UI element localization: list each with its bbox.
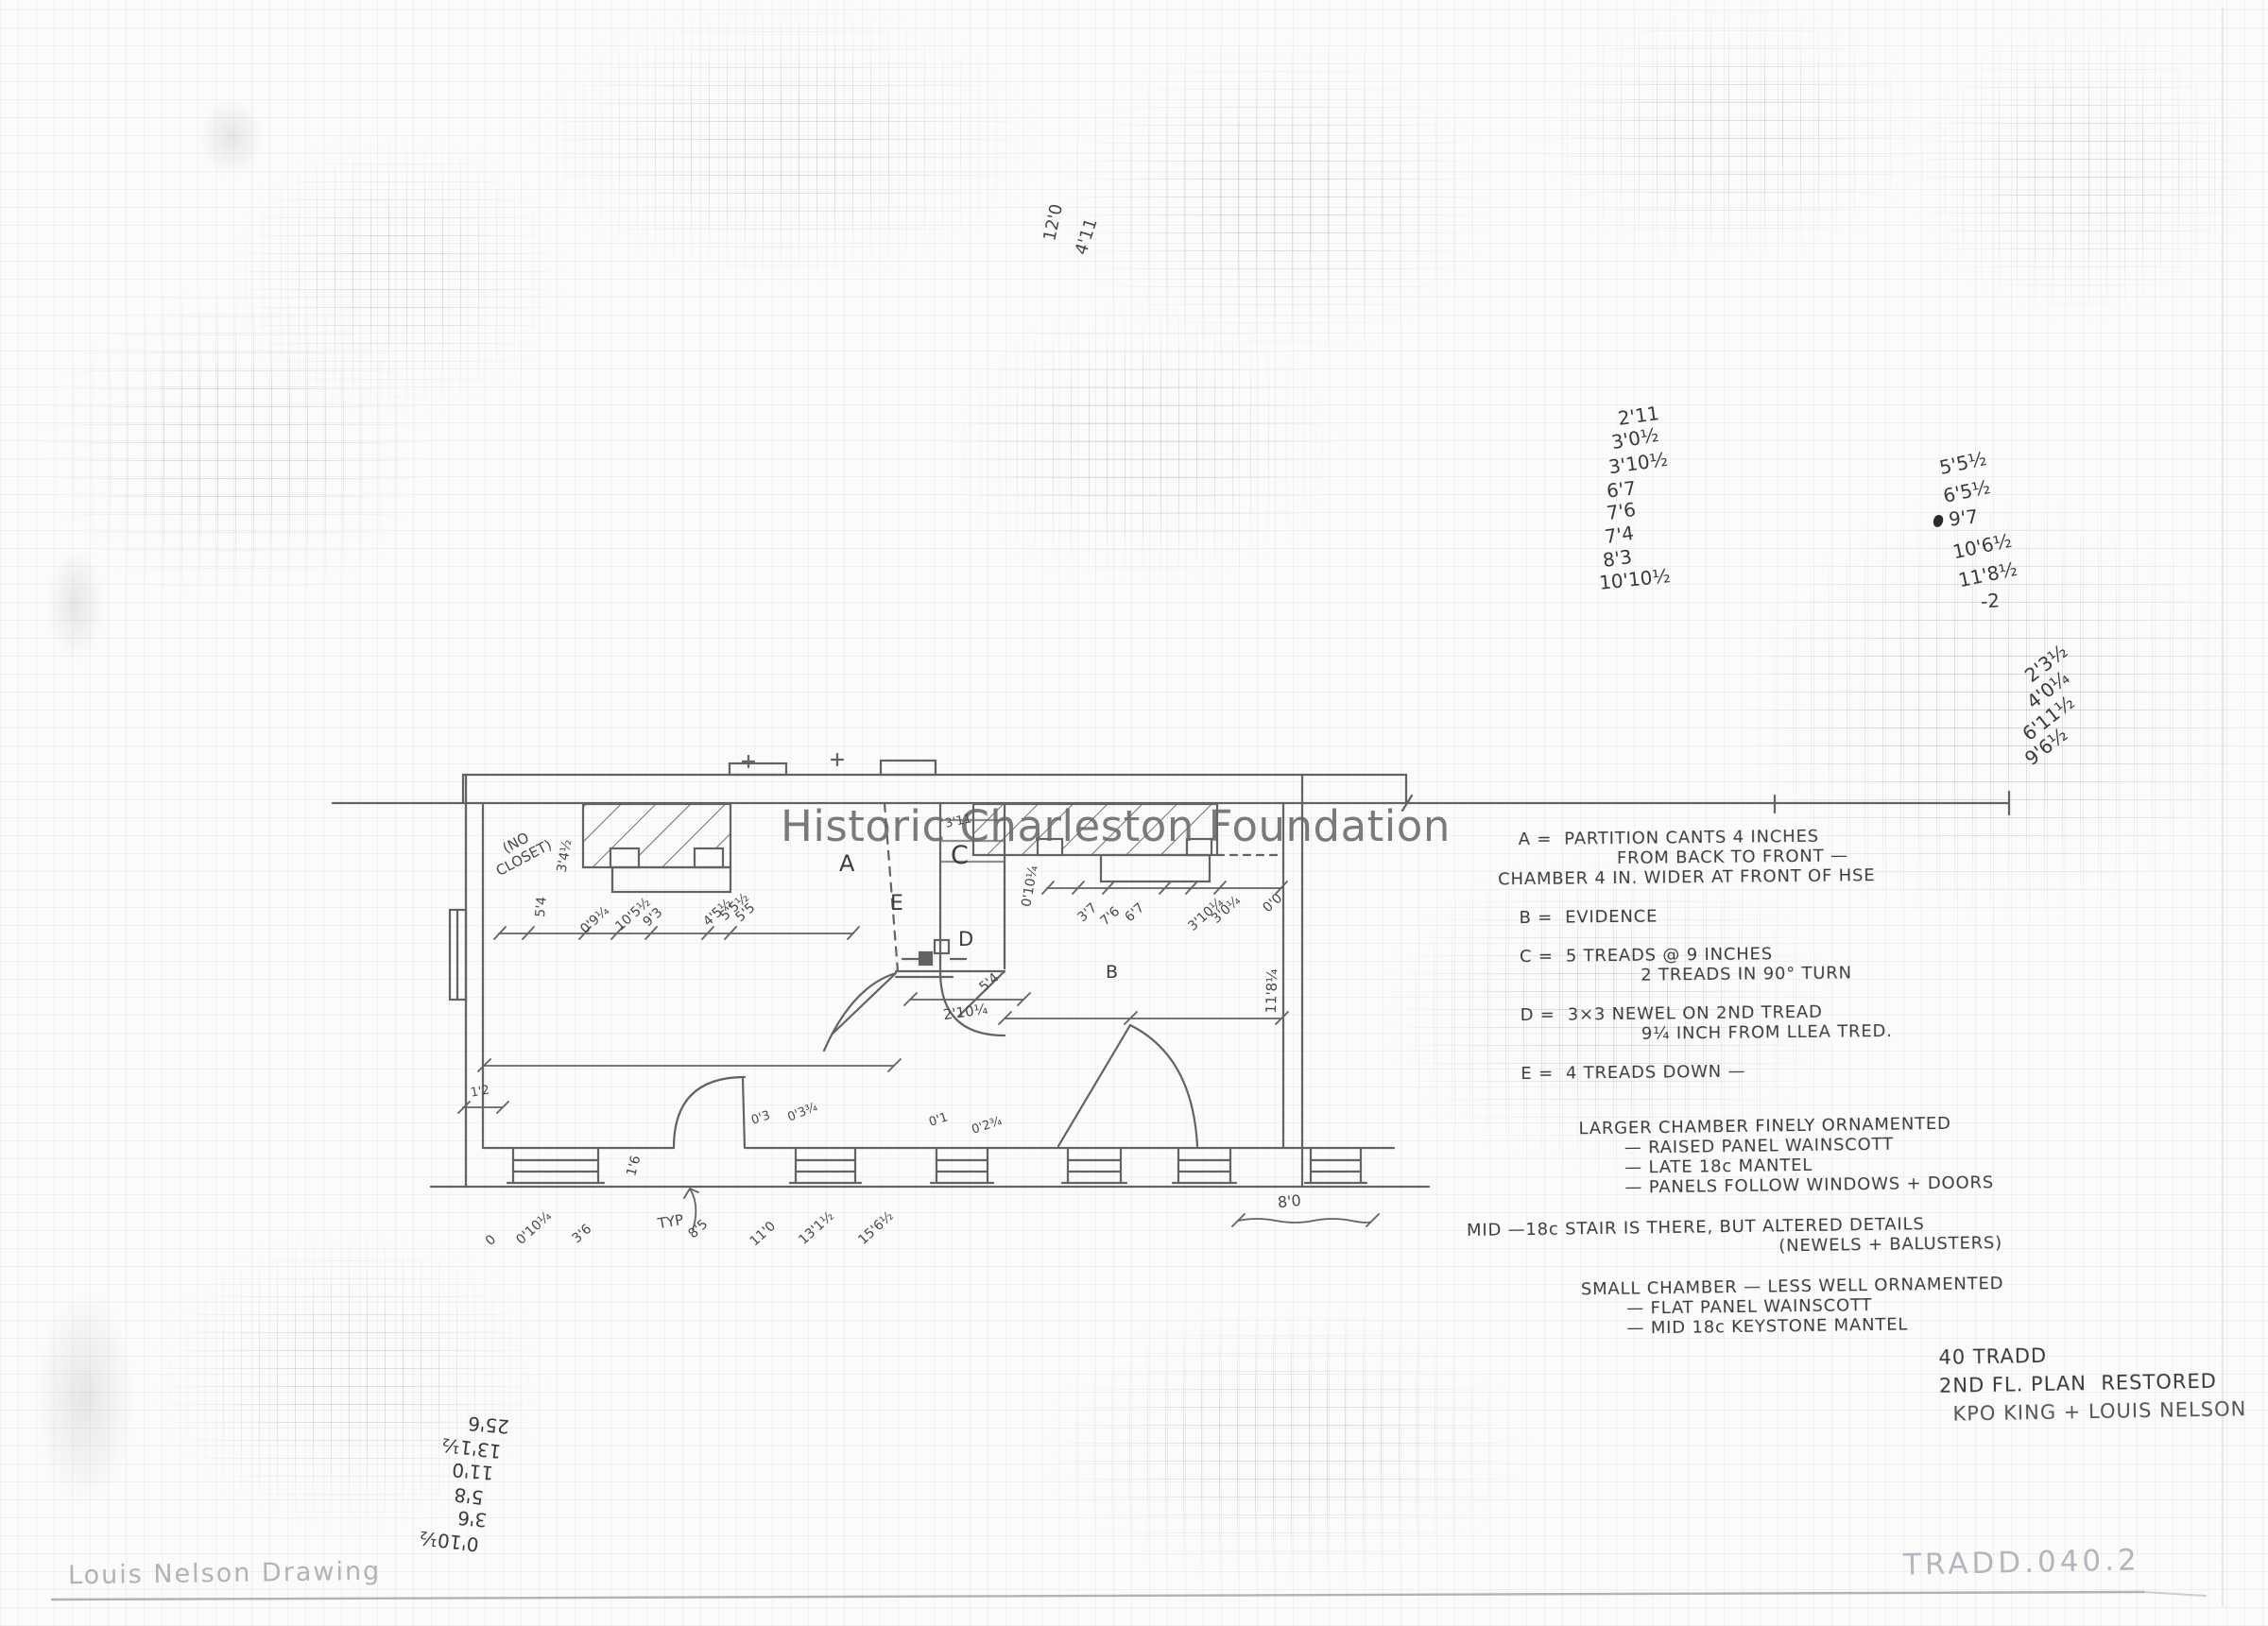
- legend-line-d2: 9¼ INCH FROM LLEA TRED.: [1521, 1021, 1893, 1045]
- scanned-drawing-page: Historic Charleston Foundation A = PARTI…: [0, 0, 2268, 1626]
- plan-letter-d: D: [958, 928, 973, 950]
- legend-line-a3: CHAMBER 4 IN. WIDER AT FRONT OF HSE: [1498, 865, 1891, 889]
- legend-line-e: E = 4 TREADS DOWN —: [1521, 1060, 1893, 1084]
- legend-line-c2: 2 TREADS IN 90° TURN: [1520, 963, 1892, 986]
- chamber-notes: LARGER CHAMBER FINELY ORNAMENTED — RAISE…: [1465, 1113, 2004, 1341]
- measure-right: -2: [1980, 589, 2001, 612]
- dimension-lines: [458, 881, 1379, 1230]
- title-authors: KPO KING + LOUIS NELSON: [1939, 1397, 2246, 1426]
- legend-notes: A = PARTITION CANTS 4 INCHES FROM BACK T…: [1519, 826, 1894, 1084]
- measure-right: 9'7: [1948, 505, 1979, 530]
- plan-letter-a: A: [839, 850, 854, 877]
- measure-top: 7'6: [1605, 498, 1637, 524]
- plan-dim: 11'8¼: [1263, 968, 1281, 1014]
- plan-letter-e: E: [890, 892, 903, 916]
- title-block: 40 TRADD 2ND FL. PLAN RESTORED KPO KING …: [1938, 1341, 2246, 1431]
- scale-dim-label: 8'0: [1277, 1191, 1302, 1211]
- legend-line-b: B = EVIDENCE: [1519, 904, 1891, 928]
- title-plan: 2ND FL. PLAN RESTORED: [1939, 1369, 2246, 1397]
- measure-top: 7'4: [1603, 522, 1635, 548]
- plan-letter-c: C: [951, 841, 969, 870]
- title-address: 40 TRADD: [1938, 1341, 2245, 1369]
- watermark-text: Historic Charleston Foundation: [781, 801, 1451, 851]
- plan-letter-b: B: [1106, 962, 1118, 983]
- signature-note: Louis Nelson Drawing: [68, 1557, 382, 1591]
- catalog-number: TRADD.040.2: [1903, 1543, 2140, 1582]
- window-symbols: [450, 910, 1366, 1183]
- measure-inverted-column: 0'10½ 3'6 5'8 11'0 13'1½ 25'6: [394, 1409, 510, 1552]
- chimney-left: [583, 804, 730, 892]
- plan-dim: 5'4: [533, 897, 550, 918]
